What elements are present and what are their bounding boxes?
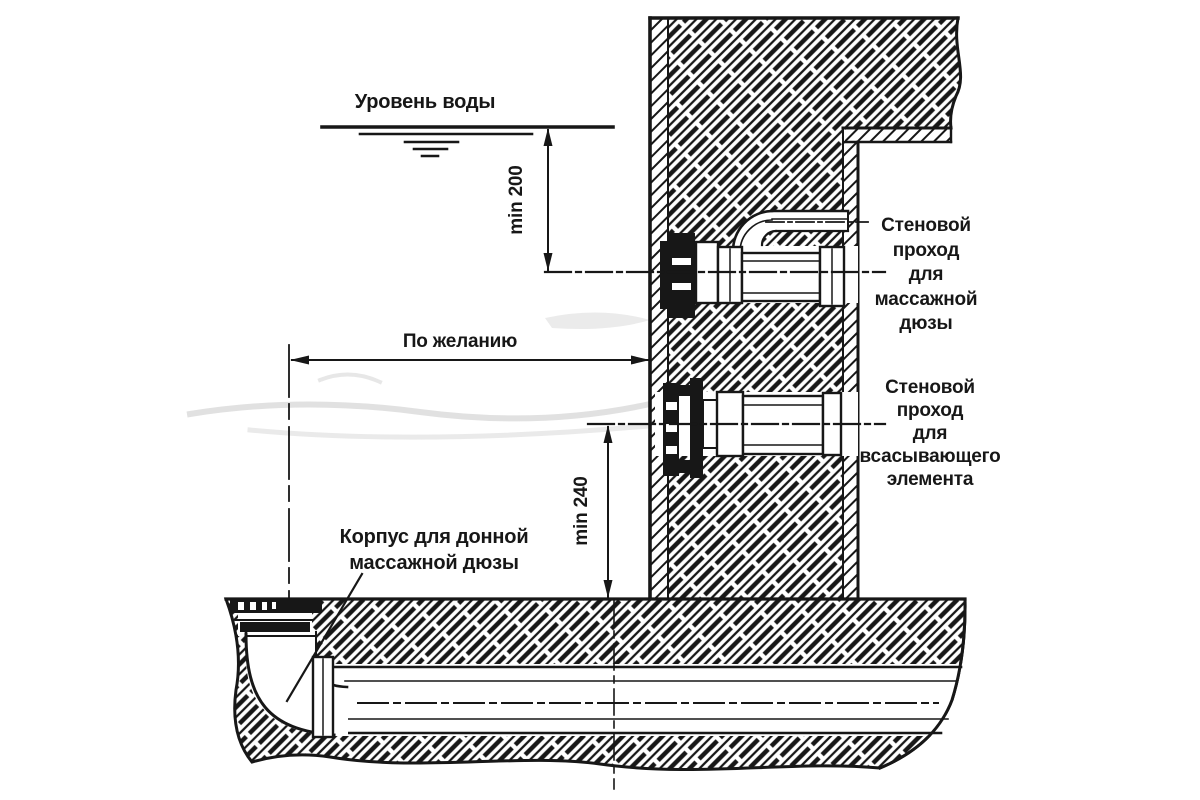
label-dimension-min240: min 240 (569, 446, 595, 576)
label-dimension-optional: По желанию (350, 330, 570, 354)
label-wall-passage-massage: Стеновой проход для массажной дюзы (826, 214, 1026, 337)
wall-ledge-finish (845, 128, 951, 142)
dimension-min240 (604, 425, 613, 598)
floor-pipe (334, 664, 963, 736)
dimension-min200 (544, 128, 553, 271)
label-water-level: Уровень воды (310, 90, 540, 114)
water-level-mark (322, 127, 613, 156)
label-bottom-nozzle-housing: Корпус для донной массажной дюзы (328, 524, 540, 576)
technical-drawing-page: Уровень воды min 200 По желанию min 240 … (0, 0, 1200, 800)
label-dimension-min200: min 200 (504, 135, 530, 265)
label-wall-passage-suction: Стеновой проход для всасывающего элемент… (821, 376, 1039, 491)
nozzle-flange (668, 233, 695, 318)
